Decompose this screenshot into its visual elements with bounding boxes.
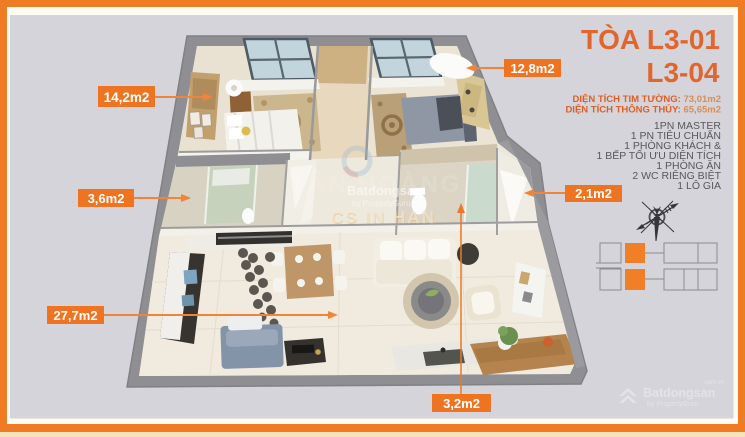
svg-text:CS IN HAN: CS IN HAN — [331, 208, 436, 227]
svg-text:by PropertyGuru: by PropertyGuru — [352, 199, 411, 208]
svg-text:Batdongsan: Batdongsan — [643, 386, 715, 400]
svg-text:3,2m2: 3,2m2 — [443, 396, 480, 411]
svg-text:2,1m2: 2,1m2 — [575, 186, 612, 201]
svg-text:Batdongsan: Batdongsan — [347, 183, 422, 198]
svg-text:1 LÔ GIA: 1 LÔ GIA — [677, 179, 721, 192]
svg-text:TÒA L3-01: TÒA L3-01 — [581, 24, 720, 55]
svg-text:L3-04: L3-04 — [646, 57, 720, 88]
svg-text:.com.vn: .com.vn — [703, 380, 724, 386]
svg-text:DIỆN TÍCH THÔNG THỦY: 65,65m2: DIỆN TÍCH THÔNG THỦY: 65,65m2 — [565, 104, 721, 116]
svg-text:12,8m2: 12,8m2 — [510, 61, 554, 76]
svg-text:14,2m2: 14,2m2 — [104, 90, 150, 105]
svg-text:by PropertyGuru: by PropertyGuru — [647, 401, 698, 408]
svg-text:DIỆN TÍCH TIM TƯỜNG: 73,01m2: DIỆN TÍCH TIM TƯỜNG: 73,01m2 — [573, 93, 722, 105]
svg-text:27,7m2: 27,7m2 — [53, 308, 97, 323]
svg-text:3,6m2: 3,6m2 — [88, 191, 125, 206]
